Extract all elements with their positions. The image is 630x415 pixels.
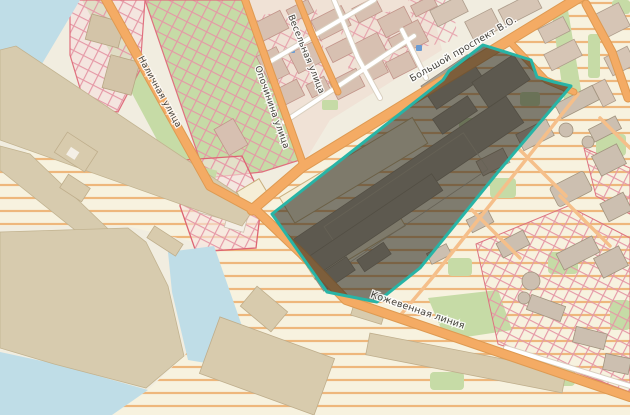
map-viewport[interactable]: Большой проспект В.О. Кожевенная линия Н… xyxy=(0,0,630,415)
poi-marker-icon xyxy=(416,45,422,51)
map-canvas[interactable]: Большой проспект В.О. Кожевенная линия Н… xyxy=(0,0,630,415)
